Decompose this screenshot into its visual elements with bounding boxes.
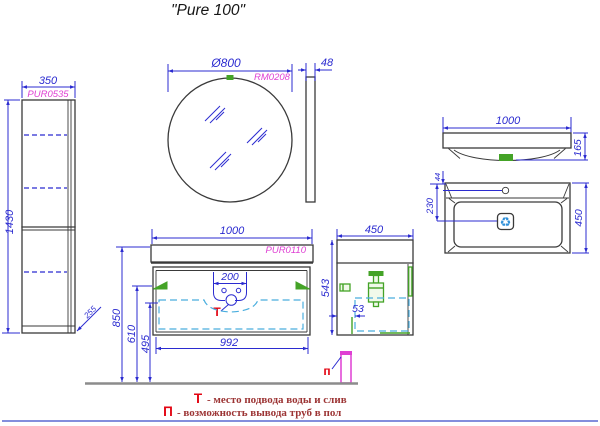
vanity-width-label: 1000	[220, 225, 245, 237]
mirror-thickness-label: 48	[321, 57, 334, 69]
water-supply-marker: Т	[213, 305, 221, 319]
wall-drain-outlet	[340, 284, 350, 291]
vanity-height-drawer-label: 495	[140, 334, 152, 353]
legend-text-water: - место подвода воды и слив	[207, 394, 347, 406]
vanity-side-depth-label: 450	[365, 224, 384, 236]
drain-recycle-icon: ♻	[500, 215, 512, 230]
mirror-code: RM0208	[254, 72, 291, 83]
page-title: "Pure 100"	[171, 2, 246, 19]
legend-marker-floor-pipe: П	[163, 404, 173, 419]
vanity-side-pipe-offset-label: 53	[352, 303, 364, 315]
mirror-side-profile	[306, 77, 315, 202]
tall-cabinet-height-label: 1430	[4, 209, 16, 234]
floor-pipe-leader	[332, 357, 341, 369]
vanity-side-height-label: 543	[320, 278, 332, 297]
sink-top-view: ♻ 450 230 44	[425, 171, 589, 253]
vanity-front-view: 1000 PUR0110 200 Т 992 850 610 495	[111, 225, 313, 382]
legend-marker-water: Т	[194, 391, 203, 406]
tall-cabinet-depth-label: 255	[82, 304, 99, 321]
sink-top-depth-label: 450	[573, 209, 585, 227]
vanity-height-countertop-label: 610	[126, 324, 138, 343]
floor-pipe-duct-cap	[340, 351, 352, 355]
tall-cabinet-width-label: 350	[39, 75, 58, 87]
floor-pipe-duct	[341, 352, 351, 383]
vanity-side-view: 450 543 53 п	[320, 224, 413, 383]
spec-sheet: "Pure 100" 350 PUR0535 1430 255 Ø800 RM0…	[0, 0, 600, 426]
vanity-code: PUR0110	[266, 245, 307, 256]
mounting-tick	[227, 76, 233, 80]
tall-cabinet-code: PUR0535	[27, 89, 69, 100]
mirror-front-view: Ø800 RM0208	[168, 56, 292, 202]
siphon-neck	[374, 276, 379, 284]
sink-top-faucet-offset-label: 44	[433, 173, 442, 181]
technical-drawing-canvas: "Pure 100" 350 PUR0535 1430 255 Ø800 RM0…	[0, 0, 600, 426]
legend-text-floor-pipe: - возможность вывода труб в пол	[177, 407, 341, 419]
mirror-side-view: 48	[298, 57, 334, 202]
siphon-outlet	[374, 302, 379, 307]
sink-top-drain-offset-label: 230	[425, 197, 436, 215]
mirror-diameter-label: Ø800	[210, 56, 241, 70]
sink-front-height-label: 165	[572, 139, 584, 157]
sink-body	[443, 133, 571, 148]
drain-fitting	[500, 155, 513, 161]
vanity-height-total-label: 850	[111, 308, 123, 327]
sink-front-width-label: 1000	[496, 115, 521, 127]
floor-pipe-marker: п	[323, 364, 330, 378]
legend: Т - место подвода воды и слив П - возмож…	[163, 391, 347, 419]
vanity-bottom-width-label: 992	[220, 337, 238, 349]
tall-cabinet-view: 350 PUR0535 1430 255	[2, 75, 101, 333]
gas-lift-strip	[409, 267, 412, 296]
siphon-body	[369, 283, 384, 302]
sink-front-view: 1000 165	[443, 115, 588, 161]
mirror-circle	[168, 78, 292, 202]
vanity-cutout-label: 200	[220, 271, 239, 283]
